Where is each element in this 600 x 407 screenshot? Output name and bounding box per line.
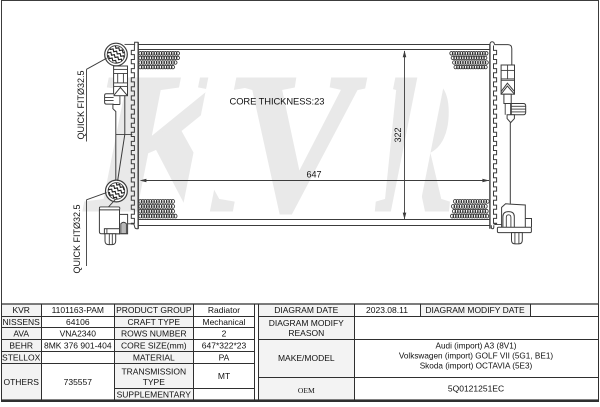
svg-text:64106: 64106: [66, 317, 90, 327]
svg-text:Audi (import) A3 (8V1): Audi (import) A3 (8V1): [436, 342, 517, 351]
svg-text:DIAGRAM DATE: DIAGRAM DATE: [274, 305, 338, 315]
svg-text:647: 647: [306, 169, 321, 179]
svg-text:Mechanical: Mechanical: [203, 317, 246, 327]
svg-text:REASON: REASON: [288, 328, 324, 338]
svg-text:8MK 376 901-404: 8MK 376 901-404: [44, 341, 112, 351]
svg-text:OTHERS: OTHERS: [3, 377, 39, 387]
svg-text:QUICK FITØ32.5: QUICK FITØ32.5: [72, 204, 82, 273]
svg-text:MT: MT: [218, 371, 230, 381]
svg-text:PRODUCT GROUP: PRODUCT GROUP: [116, 305, 192, 315]
svg-text:AVA: AVA: [13, 329, 29, 339]
svg-text:Volkswagen (import) GOLF VII (: Volkswagen (import) GOLF VII (5G1, BE1): [399, 352, 554, 361]
svg-text:DIAGRAM MODIFY: DIAGRAM MODIFY: [269, 318, 344, 328]
svg-text:647*322*23: 647*322*23: [202, 341, 247, 351]
svg-text:Radiator: Radiator: [208, 305, 240, 315]
svg-text:STELLOX: STELLOX: [2, 353, 41, 363]
svg-text:1101163-PAM: 1101163-PAM: [52, 305, 104, 315]
svg-text:735557: 735557: [64, 377, 93, 387]
svg-text:MAKE/MODEL: MAKE/MODEL: [278, 353, 335, 363]
svg-text:MATERIAL: MATERIAL: [133, 353, 175, 363]
svg-text:2: 2: [222, 329, 227, 339]
svg-text:Skoda (import) OCTAVIA (5E3): Skoda (import) OCTAVIA (5E3): [420, 361, 533, 370]
svg-text:VNA2340: VNA2340: [60, 329, 97, 339]
svg-text:PA: PA: [219, 353, 230, 363]
svg-text:BEHR: BEHR: [9, 341, 33, 351]
svg-text:TYPE: TYPE: [143, 377, 166, 387]
svg-text:CRAFT TYPE: CRAFT TYPE: [128, 317, 181, 327]
svg-text:DIAGRAM MODIFY DATE: DIAGRAM MODIFY DATE: [425, 305, 525, 315]
svg-text:CORE THICKNESS:23: CORE THICKNESS:23: [230, 96, 325, 107]
svg-text:QUICK FITØ32.5: QUICK FITØ32.5: [76, 70, 86, 139]
svg-text:TRANSMISSION: TRANSMISSION: [121, 367, 186, 377]
svg-text:5Q0121251EC: 5Q0121251EC: [448, 383, 504, 393]
svg-text:ROWS NUMBER: ROWS NUMBER: [121, 329, 187, 339]
svg-text:2023.08.11: 2023.08.11: [366, 305, 408, 315]
svg-text:NISSENS: NISSENS: [3, 317, 41, 327]
svg-text:OEM: OEM: [298, 386, 315, 395]
svg-text:SUPPLEMENTARY: SUPPLEMENTARY: [117, 389, 192, 399]
svg-text:CORE SIZE(mm): CORE SIZE(mm): [121, 341, 187, 351]
svg-text:322: 322: [393, 127, 403, 142]
svg-text:KVR: KVR: [12, 305, 29, 315]
